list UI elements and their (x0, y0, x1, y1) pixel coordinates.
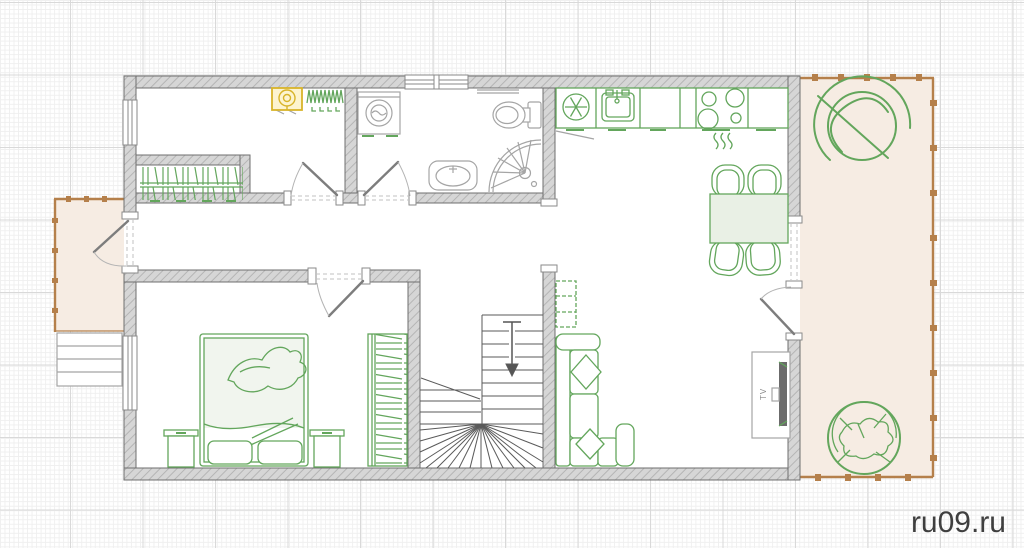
dining-set (708, 165, 788, 277)
nightstand (164, 430, 198, 467)
terrace-floor (800, 77, 934, 478)
dining-chair (708, 239, 745, 277)
wall-stairs-east (543, 270, 555, 468)
site-label: ru09.ru (911, 506, 1006, 540)
tv-stand: TV (752, 352, 790, 438)
wall-closet-top (136, 155, 250, 165)
dining-table (710, 194, 788, 243)
tv-label: TV (759, 388, 768, 400)
wall-bedroom-east (408, 282, 420, 468)
window-utility-room (123, 100, 137, 145)
dining-chair (748, 165, 781, 197)
window-bedroom (123, 336, 137, 410)
wall-bedroom-top-a (124, 270, 310, 282)
bed-pillow (208, 441, 252, 464)
wall-bedroom-top-b (365, 270, 420, 282)
dining-chair (712, 165, 744, 197)
wall-bathroom-bottom (412, 193, 555, 203)
double-bed (200, 334, 308, 466)
wall-exterior-bottom (124, 468, 800, 480)
boiler (272, 88, 302, 114)
dining-chair (745, 240, 781, 276)
bathroom-sink (429, 161, 477, 190)
toilet (493, 102, 541, 128)
washing-machine (358, 92, 400, 136)
hall-closet (140, 167, 243, 201)
bed-pillow (258, 441, 302, 464)
wall-bathroom-west (345, 88, 357, 193)
kitchen-counter (556, 88, 788, 128)
window-bathroom (405, 75, 468, 89)
floor-plan-canvas: RU09.RU (0, 0, 1024, 548)
floor-plan-svg: TV (0, 0, 1024, 548)
wall-bathroom-kitchen (543, 88, 555, 203)
nightstand (310, 430, 344, 467)
